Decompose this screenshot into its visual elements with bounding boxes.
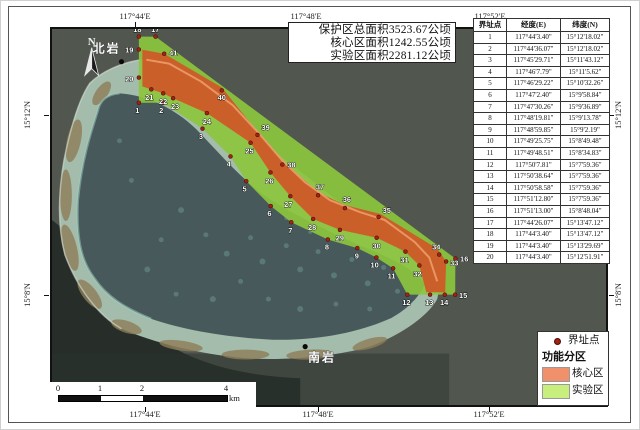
table-cell: 15°12'18.02" (561, 43, 610, 55)
boundary-point-27 (288, 194, 292, 198)
table-cell: 6 (474, 89, 507, 101)
boundary-point-label-16: 16 (460, 255, 468, 264)
table-row: 5117°46'29.22"15°10'32.26" (474, 78, 610, 90)
table-cell: 18 (474, 229, 507, 241)
boundary-point-label-36: 36 (343, 195, 351, 204)
table-cell: 1 (474, 32, 507, 44)
lon-label-top-1: 117°44'E (119, 11, 150, 21)
table-cell: 15°7'59.36" (561, 171, 610, 183)
boundary-point-label-38: 38 (287, 161, 295, 170)
table-cell: 15°12'51.91" (561, 252, 610, 264)
boundary-point-label-41: 41 (169, 49, 177, 58)
boundary-point-23 (171, 96, 175, 100)
boundary-point-34 (437, 253, 441, 257)
boundary-point-label-7: 7 (288, 226, 292, 235)
boundary-point-25 (249, 141, 253, 145)
total-area-line: 保护区总面积3523.67公顷 (289, 24, 451, 37)
table-cell: 2 (474, 43, 507, 55)
table-cell: 9 (474, 124, 507, 136)
table-cell: 117°44'26.07" (507, 217, 561, 229)
boundary-point-8 (326, 237, 330, 241)
boundary-point-label-32: 32 (413, 269, 421, 278)
boundary-point-19 (137, 48, 141, 52)
boundary-point-41 (162, 52, 166, 56)
boundary-point-label-1: 1 (135, 106, 139, 115)
table-cell: 117°46'7.79" (507, 66, 561, 78)
legend-boundary-point: 界址点 (538, 332, 608, 349)
boundary-point-4 (229, 154, 233, 158)
boundary-point-18 (137, 35, 141, 39)
table-cell: 15°7'59.36" (561, 159, 610, 171)
legend-core-zone: 核心区 (538, 365, 608, 382)
north-arrow-n: N (88, 36, 96, 48)
boundary-point-21 (149, 87, 153, 91)
boundary-point-3 (201, 127, 205, 131)
table-row: 7117°47'30.26"15°9'36.89" (474, 101, 610, 113)
table-row: 20117°44'3.40"15°12'51.91" (474, 252, 610, 264)
table-row: 1117°44'3.40"15°12'18.02" (474, 32, 610, 44)
south-rock-dot (303, 344, 308, 349)
table-cell: 117°47'30.26" (507, 101, 561, 113)
boundary-point-label-22: 22 (159, 97, 167, 106)
tick (489, 407, 490, 412)
boundary-point-label-3: 3 (199, 132, 203, 141)
table-cell: 117°51'12.80" (507, 194, 561, 206)
boundary-point-label-33: 33 (450, 258, 458, 267)
table-cell: 10 (474, 136, 507, 148)
table-cell: 4 (474, 66, 507, 78)
table-row: 16117°51'13.00"15°8'48.04" (474, 205, 610, 217)
boundary-point-label-14: 14 (440, 298, 449, 307)
table-cell: 20 (474, 252, 507, 264)
boundary-point-label-17: 17 (151, 29, 159, 34)
core-area-line: 核心区面积1242.55公顷 (289, 37, 451, 50)
table-row: 10117°49'25.75"15°8'49.48" (474, 136, 610, 148)
table-cell: 117°46'29.22" (507, 78, 561, 90)
boundary-point-label-21: 21 (145, 93, 153, 102)
boundary-point-label-10: 10 (371, 260, 379, 269)
boundary-point-35 (377, 215, 381, 219)
boundary-point-15 (453, 293, 457, 297)
table-cell: 117°50'58.58" (507, 182, 561, 194)
table-cell: 15 (474, 194, 507, 206)
tick (609, 295, 614, 296)
boundary-point-label-39: 39 (261, 123, 269, 132)
table-cell: 14 (474, 182, 507, 194)
scale-1: 1 (98, 383, 102, 393)
core-zone-swatch-icon (542, 367, 570, 382)
boundary-point-38 (280, 163, 284, 167)
table-cell: 117°48'19.81" (507, 113, 561, 125)
boundary-point-label-27: 27 (284, 200, 292, 209)
lat-label-right-1: 15°12'N (613, 101, 623, 129)
boundary-point-label-23: 23 (171, 102, 179, 111)
header-point: 界址点 (474, 19, 507, 32)
boundary-point-label-12: 12 (402, 298, 410, 307)
table-cell: 7 (474, 101, 507, 113)
boundary-point-37 (316, 193, 320, 197)
boundary-point-label-5: 5 (243, 184, 247, 193)
table-cell: 15°13'29.69" (561, 240, 610, 252)
north-rock-label: 北岩 (93, 42, 121, 56)
experimental-area-line: 实验区面积2281.12公顷 (289, 50, 451, 63)
boundary-point-28 (311, 217, 315, 221)
boundary-point-label-28: 28 (308, 223, 316, 232)
boundary-point-26 (268, 170, 272, 174)
boundary-point-label-9: 9 (355, 252, 359, 261)
boundary-point-40 (220, 88, 224, 92)
table-cell: 13 (474, 171, 507, 183)
boundary-point-label-34: 34 (432, 243, 441, 252)
boundary-point-label-6: 6 (267, 209, 271, 218)
boundary-point-36 (343, 206, 347, 210)
boundary-point-31 (403, 250, 407, 254)
area-summary-box: 保护区总面积3523.67公顷 核心区面积1242.55公顷 实验区面积2281… (288, 22, 456, 63)
boundary-point-14 (443, 293, 447, 297)
table-cell: 117°49'25.75" (507, 136, 561, 148)
boundary-point-1 (137, 101, 141, 105)
boundary-point-20 (137, 76, 141, 80)
table-row: 13117°50'38.64"15°7'59.36" (474, 171, 610, 183)
tick (145, 407, 146, 412)
boundary-point-label-2: 2 (159, 106, 163, 115)
legend-group-title: 功能分区 (538, 349, 608, 365)
table-row: 2117°44'36.07"15°12'18.02" (474, 43, 610, 55)
boundary-point-22 (161, 91, 165, 95)
boundary-point-6 (269, 204, 273, 208)
boundary-point-label-18: 18 (133, 29, 141, 34)
table-cell: 117°44'3.40" (507, 32, 561, 44)
table-cell: 15°9'36.89" (561, 101, 610, 113)
table-cell: 11 (474, 147, 507, 159)
experimental-zone-swatch-icon (542, 384, 570, 399)
boundary-point-32 (417, 264, 421, 268)
boundary-point-label-24: 24 (203, 117, 212, 126)
table-cell: 117°51'13.00" (507, 205, 561, 217)
table-cell: 17 (474, 217, 507, 229)
table-cell: 117°44'3.40" (507, 240, 561, 252)
boundary-point-label-26: 26 (265, 176, 273, 185)
boundary-point-label-19: 19 (125, 46, 133, 55)
table-row: 3117°45'29.71"15°11'43.12" (474, 55, 610, 67)
scale-2: 2 (140, 383, 144, 393)
table-cell: 15°7'59.36" (561, 182, 610, 194)
table-cell: 15°8'34.83" (561, 147, 610, 159)
table-cell: 12 (474, 159, 507, 171)
boundary-point-label-37: 37 (316, 182, 324, 191)
table-row: 18117°44'3.40"15°13'47.12" (474, 229, 610, 241)
tick (44, 295, 49, 296)
table-cell: 15°11'43.12" (561, 55, 610, 67)
table-row: 8117°48'19.81"15°9'13.78" (474, 113, 610, 125)
scale-4: 4 (224, 383, 228, 393)
table-cell: 117°44'3.40" (507, 252, 561, 264)
table-row: 14117°50'58.58"15°7'59.36" (474, 182, 610, 194)
boundary-point-7 (289, 220, 293, 224)
boundary-point-13 (428, 293, 432, 297)
table-cell: 5 (474, 78, 507, 90)
boundary-point-24 (205, 111, 209, 115)
table-cell: 15°8'49.48" (561, 136, 610, 148)
table-cell: 117°48'59.85" (507, 124, 561, 136)
legend-experimental-zone-label: 实验区 (572, 385, 604, 396)
boundary-point-label-40: 40 (218, 93, 226, 102)
table-cell: 117°44'3.40" (507, 229, 561, 241)
tick (135, 22, 136, 27)
boundary-point-17 (154, 35, 158, 39)
north-rock-dot (119, 59, 124, 64)
boundary-point-label-20: 20 (125, 74, 133, 83)
table-cell: 15°13'47.12" (561, 229, 610, 241)
boundary-point-label-15: 15 (459, 291, 467, 300)
scale-bar-segments (58, 395, 228, 402)
header-latitude: 纬度(N) (561, 19, 610, 32)
legend-core-zone-label: 核心区 (572, 368, 604, 379)
table-cell: 15°13'47.12" (561, 217, 610, 229)
table-cell: 15°11'5.62" (561, 66, 610, 78)
table-row: 9117°48'59.85"15°9'2.19" (474, 124, 610, 136)
boundary-point-icon (554, 338, 561, 345)
lat-label-left-2: 15°8'N (22, 283, 32, 307)
lat-label-left-1: 15°12'N (22, 101, 32, 129)
boundary-point-12 (405, 293, 409, 297)
boundary-point-10 (374, 255, 378, 259)
table-cell: 8 (474, 113, 507, 125)
table-cell: 117°45'29.71" (507, 55, 561, 67)
boundary-point-29 (338, 228, 342, 232)
boundary-point-5 (244, 179, 248, 183)
table-cell: 117°50'7.81" (507, 159, 561, 171)
table-row: 12117°50'7.81"15°7'59.36" (474, 159, 610, 171)
table-cell: 16 (474, 205, 507, 217)
table-header-row: 界址点 经度(E) 纬度(N) (474, 19, 610, 32)
table-cell: 15°8'48.04" (561, 205, 610, 217)
lat-label-right-2: 15°8'N (613, 283, 623, 307)
table-row: 6117°47'2.40"15°9'58.84" (474, 89, 610, 101)
boundary-point-label-25: 25 (245, 147, 253, 156)
boundary-coordinates-table: 界址点 经度(E) 纬度(N) 1117°44'3.40"15°12'18.02… (473, 18, 610, 264)
table-cell: 15°10'32.26" (561, 78, 610, 90)
boundary-point-39 (256, 133, 260, 137)
table-cell: 3 (474, 55, 507, 67)
legend-boundary-point-label: 界址点 (568, 335, 600, 346)
boundary-point-33 (444, 260, 448, 264)
table-cell: 15°7'59.36" (561, 194, 610, 206)
boundary-point-label-13: 13 (425, 298, 433, 307)
tick (318, 407, 319, 412)
boundary-point-label-29: 29 (336, 234, 344, 243)
map-screenshot: 1234567891011121314151617181920212223242… (0, 0, 640, 430)
tick (44, 115, 49, 116)
boundary-point-9 (355, 246, 359, 250)
scale-unit: km (229, 393, 240, 403)
table-cell: 117°47'2.40" (507, 89, 561, 101)
south-rock-label: 南岩 (308, 350, 336, 364)
table-cell: 117°44'36.07" (507, 43, 561, 55)
boundary-point-label-30: 30 (373, 242, 381, 251)
legend: 界址点 功能分区 核心区 实验区 (537, 331, 609, 406)
table-cell: 117°50'38.64" (507, 171, 561, 183)
lon-label-top-2: 117°48'E (290, 11, 321, 21)
boundary-point-label-8: 8 (325, 243, 329, 252)
legend-experimental-zone: 实验区 (538, 382, 608, 399)
boundary-point-label-35: 35 (383, 206, 391, 215)
boundary-point-11 (391, 266, 395, 270)
table-row: 4117°46'7.79"15°11'5.62" (474, 66, 610, 78)
table-cell: 117°49'48.51" (507, 147, 561, 159)
table-row: 15117°51'12.80"15°7'59.36" (474, 194, 610, 206)
table-row: 11117°49'48.51"15°8'34.83" (474, 147, 610, 159)
boundary-point-label-11: 11 (388, 271, 396, 280)
table-cell: 15°9'2.19" (561, 124, 610, 136)
table-cell: 15°9'13.78" (561, 113, 610, 125)
boundary-point-30 (375, 236, 379, 240)
table-cell: 15°9'58.84" (561, 89, 610, 101)
table-cell: 19 (474, 240, 507, 252)
scale-bar: 0 1 2 4 km (50, 382, 256, 407)
table-row: 19117°44'3.40"15°13'29.69" (474, 240, 610, 252)
table-cell: 15°12'18.02" (561, 32, 610, 44)
header-longitude: 经度(E) (507, 19, 561, 32)
scale-0: 0 (56, 383, 60, 393)
table-row: 17117°44'26.07"15°13'47.12" (474, 217, 610, 229)
boundary-point-label-31: 31 (400, 256, 408, 265)
